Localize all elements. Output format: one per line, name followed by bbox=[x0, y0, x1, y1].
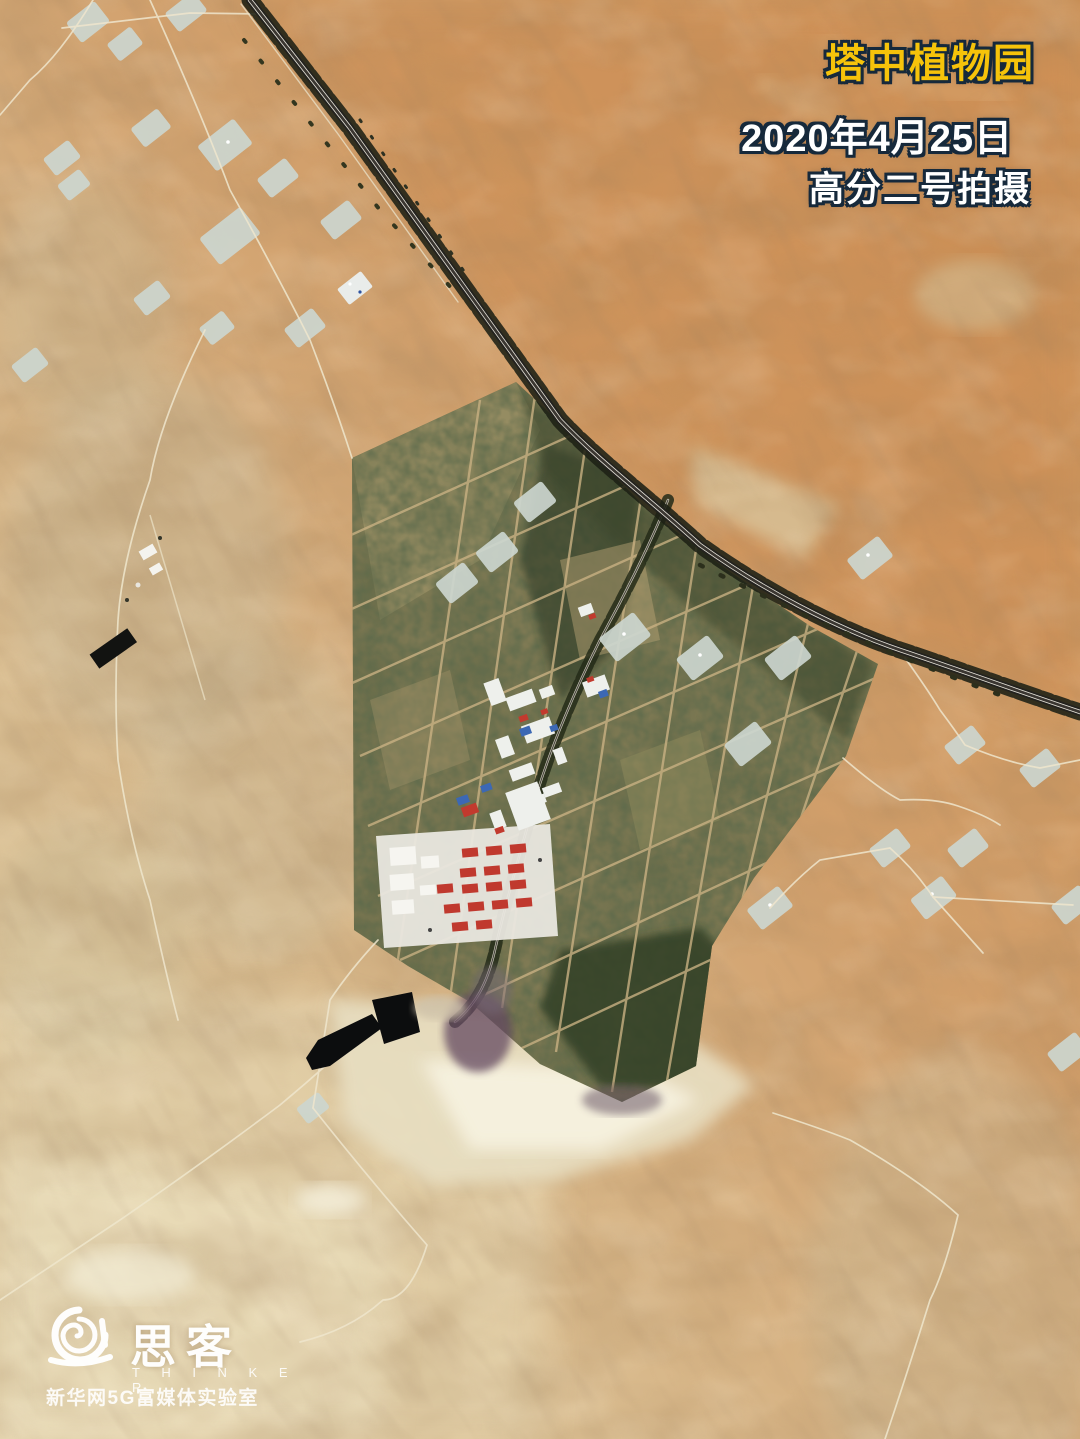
satellite-image bbox=[0, 0, 1080, 1439]
thinker-spiral-icon bbox=[46, 1305, 116, 1371]
logo-caption: 新华网5G富媒体实验室 bbox=[46, 1383, 259, 1410]
base-camp bbox=[376, 824, 558, 948]
satellite-credit: 高分二号拍摄 bbox=[809, 172, 1031, 207]
image-title: 塔中植物园 bbox=[825, 44, 1035, 84]
capture-date: 2020年4月25日 bbox=[741, 120, 1013, 158]
satellite-screenshot: 塔中植物园 2020年4月25日 高分二号拍摄 思客 T H I N K E R… bbox=[0, 0, 1080, 1439]
